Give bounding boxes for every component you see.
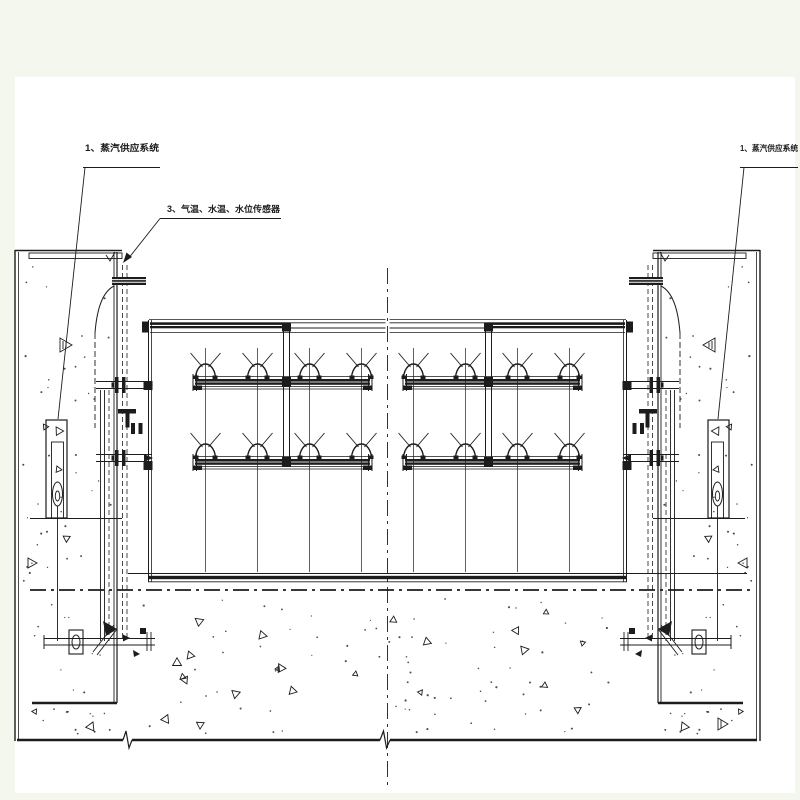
row-end-foot [193,466,202,471]
foundation-dot [260,646,262,648]
pier-stipple-dot [75,729,77,731]
pier-stipple-dot [77,733,79,735]
foundation-dot [407,681,409,683]
pier-stipple-dot [32,266,34,268]
pier-stipple-dot [37,626,39,628]
pier-stipple-dot [99,654,100,655]
foundation-dot [222,652,224,654]
pier-stipple-dot [67,711,69,713]
foundation-dot [316,636,318,638]
nozzle-base [317,456,322,460]
foundation-dot [523,693,525,695]
flange-plate [115,377,119,393]
pier-stipple-dot [73,689,74,690]
pier-stipple-dot [90,713,91,714]
foundation-dot [263,605,265,607]
pier-stipple-dot [48,455,50,457]
pier-stipple-dot [22,464,24,466]
foundation-dot [478,668,480,670]
nozzle-base [317,376,322,380]
foundation-dot [444,598,446,600]
foundation-dot [490,681,492,683]
flange-plate [122,377,126,393]
pier-stipple-dot [75,400,77,402]
valve-stem [126,414,130,428]
pier-stipple-dot [108,337,110,339]
pier-stipple-dot [47,567,48,568]
pier-stipple-dot [42,720,44,722]
foundation-dot [212,636,214,638]
row-end-foot [193,386,202,391]
engineering-drawing-svg: 1、蒸汽供应系统 3、气温、水温、水位传感器 1、蒸汽供应系统 [0,0,800,800]
foundation-dot [411,636,413,638]
pier-stipple-dot [92,716,93,717]
foundation-dot [588,703,590,705]
foundation-dot [416,731,418,733]
foundation-dot [590,671,592,673]
pier-stipple-dot [60,511,62,513]
foundation-dot [270,710,272,712]
foundation-dot [282,730,283,731]
pier-stipple-dot [23,580,25,582]
foundation-dot [607,681,609,683]
row-end-foot [363,466,372,471]
pier-stipple-dot [37,503,39,505]
foundation-dot [434,714,436,716]
foundation-dot [434,697,436,699]
foundation-dot [509,667,510,668]
foundation-dot [205,695,207,697]
pier-stipple-dot [80,555,82,557]
row-pipe-band [195,462,370,464]
foundation-dot [375,628,377,630]
foundation-dot [275,670,277,672]
pier-stipple-dot [92,653,93,654]
foundation-dot [149,725,151,727]
foundation-dot [407,662,409,664]
pipe-joint-block [140,628,146,634]
nozzle-base [194,456,199,460]
pier-stipple-dot [75,454,77,456]
valve-flange [131,423,135,434]
pier-stipple-dot [93,398,95,400]
pier-stipple-dot [60,496,62,498]
pier-stipple-dot [98,480,99,481]
foundation-dot [450,697,452,699]
foundation-dot [205,732,207,734]
foundation-dot [606,627,608,629]
foundation-dot [405,699,407,701]
pier-stipple-dot [91,490,92,491]
foundation-dot [494,647,496,649]
valve-flange [139,423,143,434]
foundation-dot [529,681,531,683]
top-header-pipe [150,322,290,325]
row-pipe-band [195,379,370,382]
foundation-dot [222,600,223,601]
foundation-dot [445,642,446,643]
pier-stipple-dot [104,297,106,299]
foundation-dot [426,728,428,730]
paper-sheet [15,77,795,793]
nozzle-base [369,456,374,460]
label-steam-supply-right: 1、蒸汽供应系统 [740,143,798,153]
pier-stipple-dot [40,533,42,535]
foundation-dot [409,671,411,673]
nozzle-base [194,376,199,380]
flange-bolt [112,382,115,387]
foundation-dot [540,602,541,603]
pier-stipple-dot [46,286,47,287]
nozzle-base [350,456,355,460]
flange-bolt [112,455,115,460]
foundation-dot [406,656,408,658]
feed-joint [282,323,291,332]
nozzle-base [265,376,270,380]
foundation-dot [409,709,411,711]
foundation-dot [485,700,487,702]
pier-stipple-dot [66,558,68,560]
foundation-dot [413,618,415,620]
foundation-dot [311,615,312,616]
gate-bottom-band [148,576,627,579]
foundation-dot [398,636,400,638]
foundation-dot [427,694,429,696]
foundation-dot [564,731,565,732]
foundation-dot [370,620,371,621]
row-pipe-band [195,459,370,462]
row-end-foot [363,386,372,391]
drawing-canvas: 1、蒸汽供应系统 3、气温、水温、水位传感器 1、蒸汽供应系统 [0,0,800,800]
foundation-dot [565,622,566,623]
flange-plate [122,450,126,466]
pier-stipple-dot [104,713,106,715]
foundation-dot [405,709,406,710]
pier-stipple-dot [53,708,55,710]
foundation-dot [540,709,542,711]
pier-stipple-dot [68,617,69,618]
pier-stipple-dot [88,393,89,394]
label-sensors: 3、气温、水温、水位传感器 [167,203,280,214]
feed-joint [282,457,291,467]
pier-stipple-dot [51,604,53,606]
nozzle-base [213,456,218,460]
valve-t-handle [118,409,136,414]
nozzle-base [369,376,374,380]
pier-stipple-dot [109,729,111,731]
pier-stipple-dot [40,391,42,393]
foundation-dot [395,706,397,708]
foundation-dot [525,713,526,714]
pier-stipple-dot [110,504,112,506]
header-end-joint [142,322,149,333]
foundation-dot [541,651,543,653]
foundation-dot [216,691,218,693]
row-pipe-band [195,382,370,384]
foundation-dot [515,607,516,608]
foundation-dot [388,641,390,643]
foundation-dot [346,645,348,647]
pier-stipple-dot [64,617,65,618]
foundation-dot [495,686,497,688]
pier-stipple-dot [25,282,27,284]
foundation-dot [508,606,510,608]
pier-stipple-dot [60,669,61,670]
label-steam-supply-left: 1、蒸汽供应系统 [85,142,159,153]
foundation-dot [240,707,242,709]
foundation-dot [281,608,283,610]
foundation-dot [311,655,312,656]
foundation-dot [180,701,182,703]
nozzle-base [213,376,218,380]
foundation-dot [225,630,227,632]
top-header-pipe [150,326,290,328]
pier-stipple-dot [34,635,36,637]
pier-stipple-dot [48,379,50,381]
pier-stipple-dot [27,517,28,518]
foundation-dot [194,669,196,671]
nozzle-base [298,456,303,460]
nozzle-base [265,456,270,460]
slot-heater-band [112,277,146,285]
foundation-dot [143,604,145,606]
foundation-dot [571,728,573,730]
pier-stipple-dot [47,387,48,388]
pier-stipple-dot [83,691,85,693]
feed-joint [282,377,291,387]
pier-stipple-dot [25,355,27,357]
nozzle-base [350,376,355,380]
foundation-dot [272,731,274,733]
nozzle-base [246,456,251,460]
foundation-dot [493,632,494,633]
pier-stipple-dot [29,572,31,574]
pier-stipple-dot [64,525,66,527]
foundation-dot [494,728,496,730]
foundation-dot [345,660,347,662]
pier-stipple-dot [81,335,83,337]
pier-stipple-dot [75,472,76,473]
foundation-dot [378,656,380,658]
pier-stipple-dot [31,562,33,564]
foundation-dot [601,617,602,618]
pier-stipple-dot [26,566,28,568]
nozzle-base [298,376,303,380]
foundation-dot [480,691,482,693]
foundation-dot [364,629,366,631]
pier-stipple-dot [75,366,77,368]
nozzle-base [246,376,251,380]
pier-stipple-dot [46,531,48,533]
pier-stipple-dot [84,356,86,358]
foundation-dot [470,722,472,724]
pier-stipple-dot [37,544,39,546]
foundation-dot [290,629,291,630]
flange-plate [115,450,119,466]
